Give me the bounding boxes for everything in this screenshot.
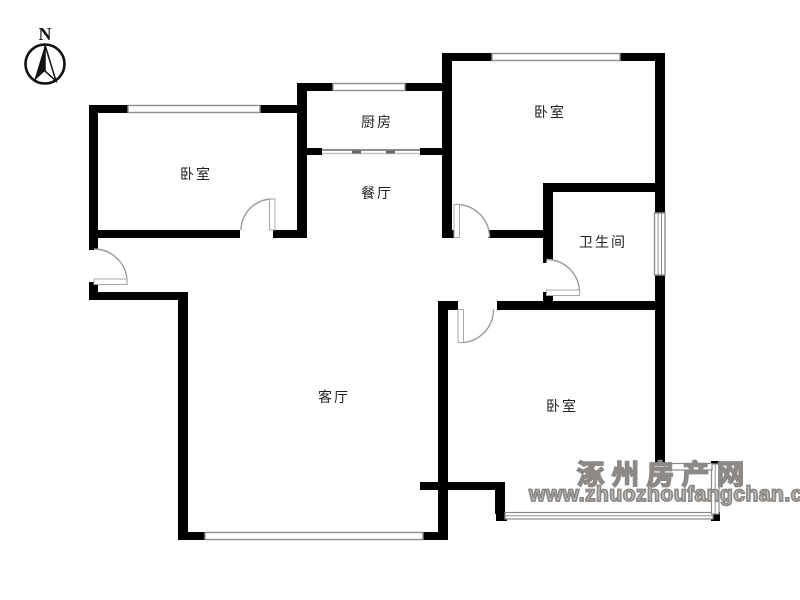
door-entrance [94, 249, 127, 282]
room-label-kitchen: 厨房 [361, 112, 393, 132]
room-label-living: 客厅 [318, 387, 350, 407]
room-label-bedroom-bottom-right: 卧室 [546, 396, 578, 416]
watermark-site-url: www.zhuozhoufangchan.com [529, 483, 800, 507]
room-label-dining: 餐厅 [361, 183, 393, 203]
window-living-room [205, 533, 423, 540]
window-bathroom [655, 213, 666, 275]
door-bedroom-top-right [457, 205, 490, 238]
room-label-bedroom-top-right: 卧室 [534, 102, 566, 122]
sliding-door-kitchen [322, 150, 420, 154]
room-label-bedroom-left: 卧室 [180, 164, 212, 184]
door-bedroom-bottom-right [461, 310, 494, 343]
window-bedroom-top-right [492, 54, 620, 61]
window-bedroom-left [128, 106, 260, 113]
floorplan-drawing [0, 0, 800, 600]
door-bathroom [547, 260, 580, 293]
room-label-bathroom: 卫生间 [579, 232, 627, 252]
doors [94, 199, 580, 343]
door-bedroom-left [241, 199, 273, 230]
floorplan-canvas: N [0, 0, 800, 600]
window-kitchen [333, 84, 405, 91]
